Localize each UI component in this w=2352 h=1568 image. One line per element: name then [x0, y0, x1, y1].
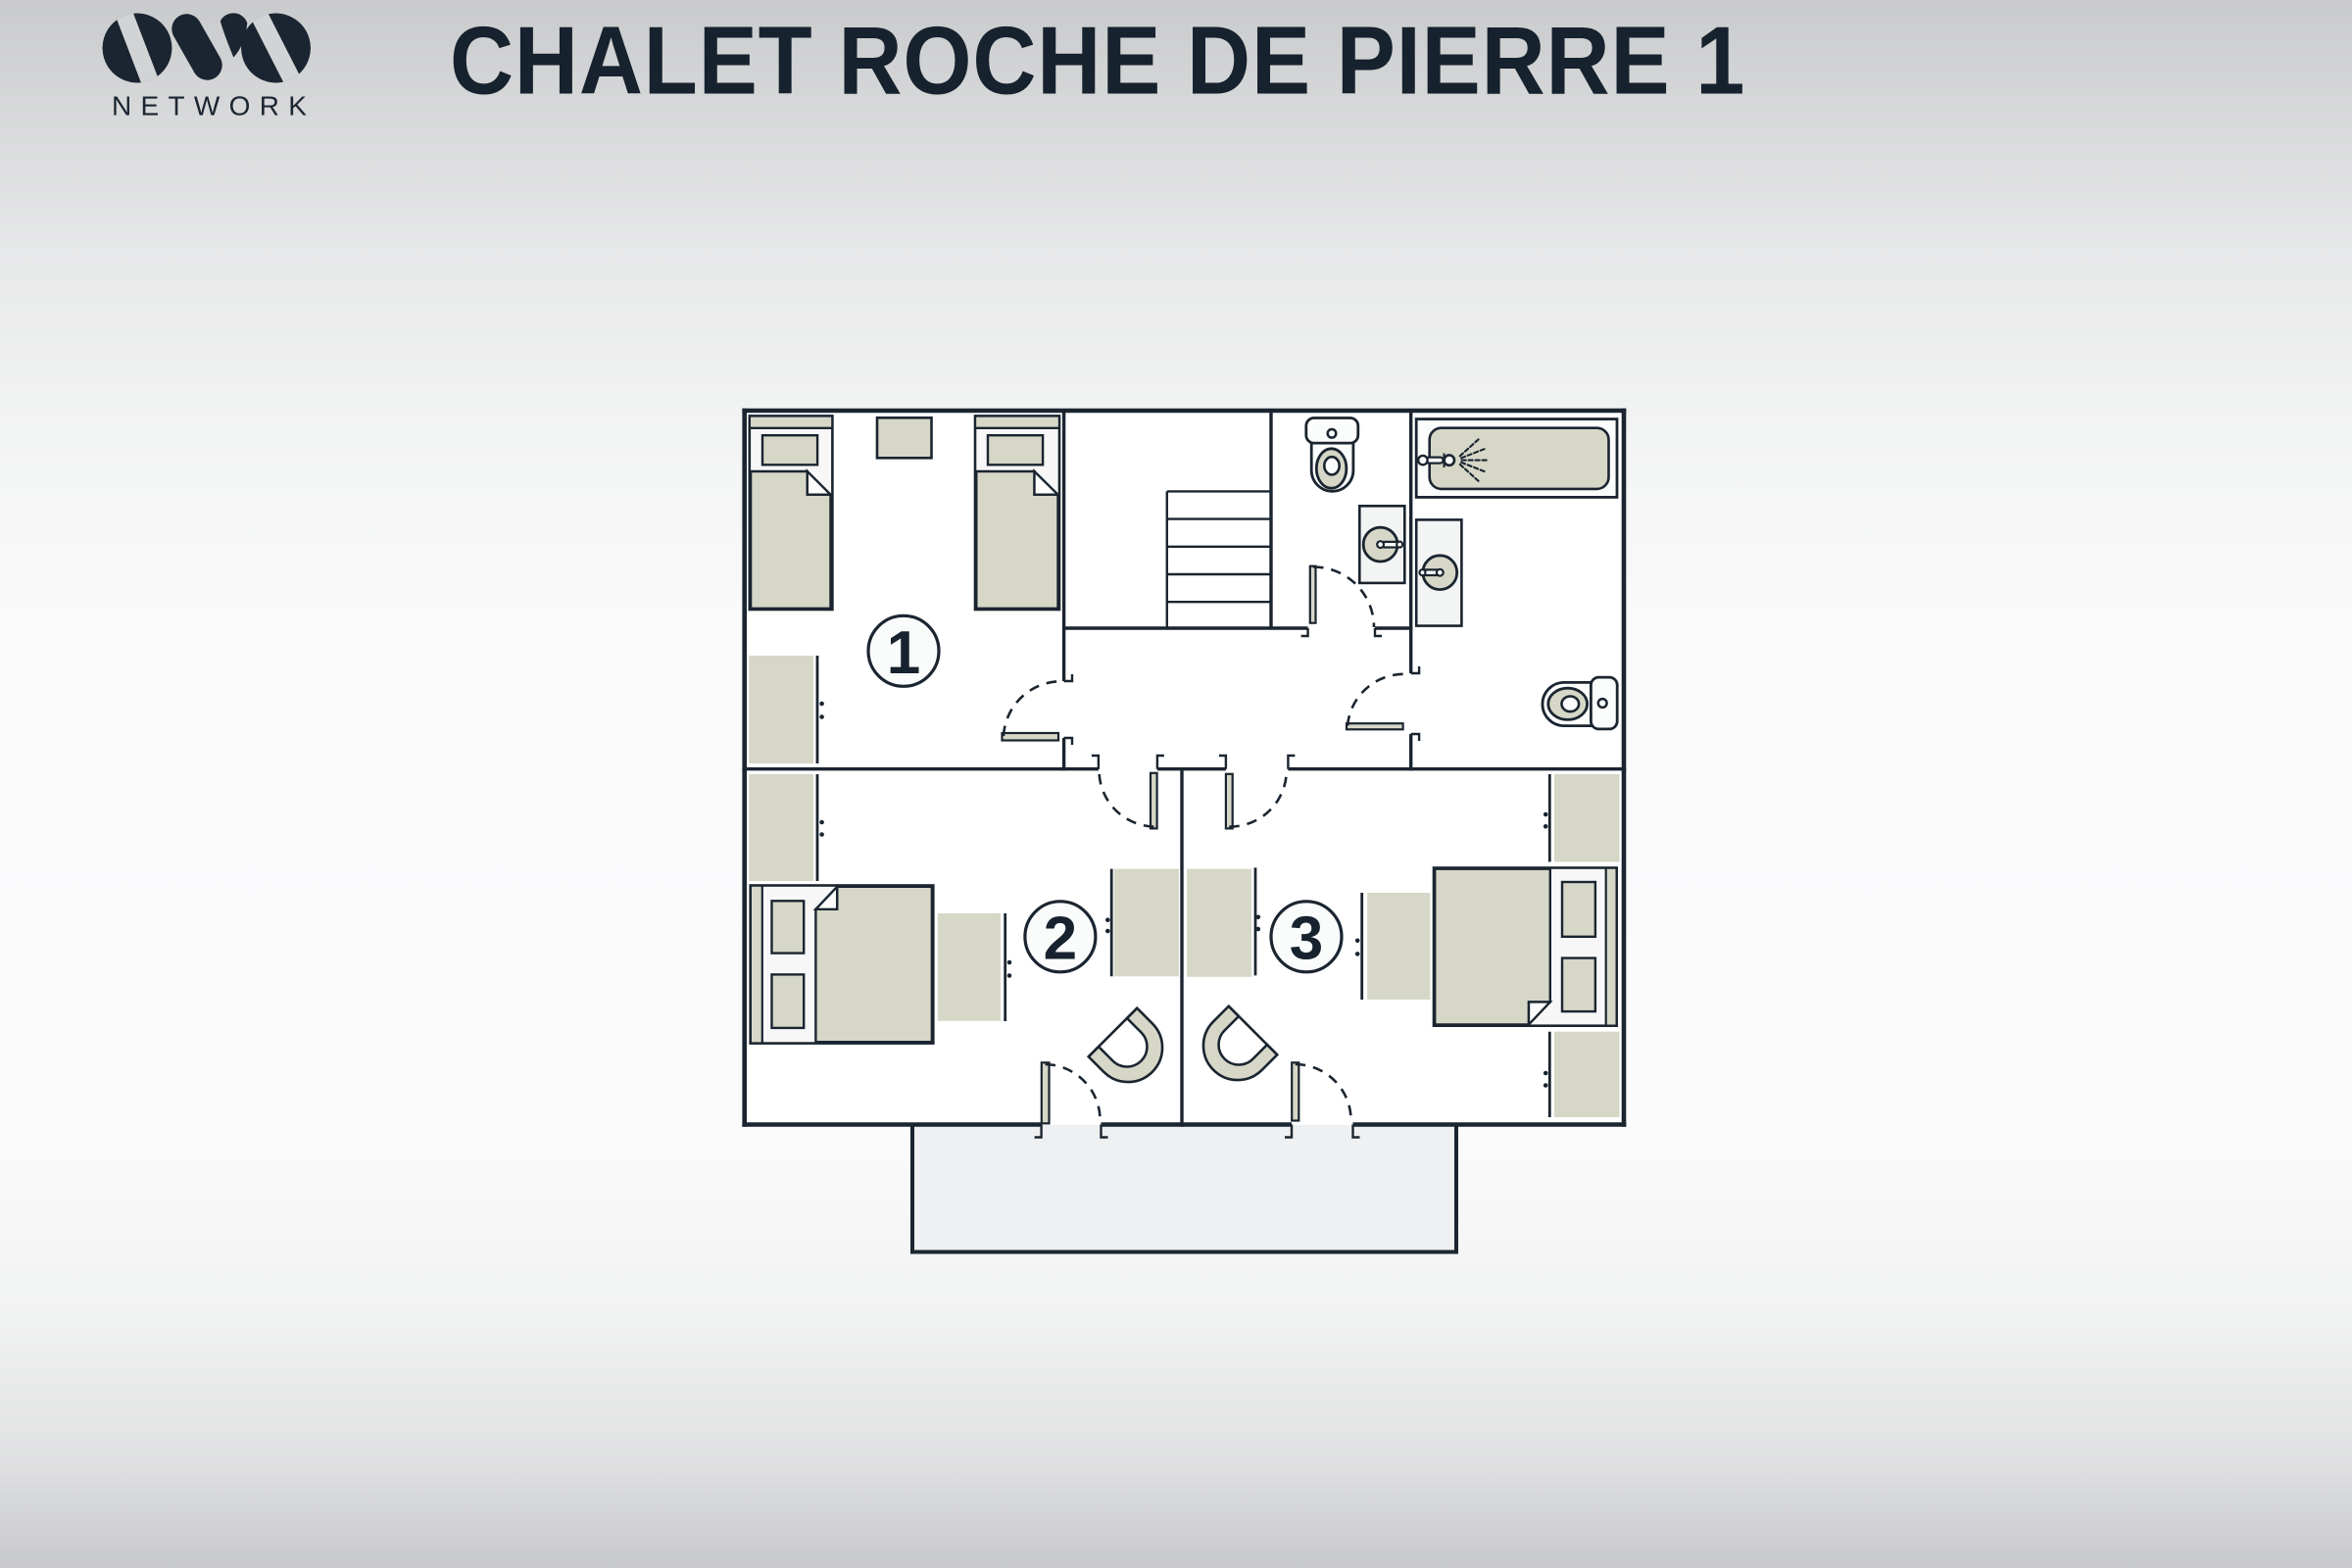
svg-text:3: 3 — [1290, 906, 1323, 973]
svg-text:NETWORK: NETWORK — [112, 91, 316, 122]
svg-text:2: 2 — [1044, 906, 1077, 973]
svg-text:CHALET ROCHE DE PIERRE 1: CHALET ROCHE DE PIERRE 1 — [450, 7, 1745, 114]
svg-text:1: 1 — [887, 619, 920, 687]
